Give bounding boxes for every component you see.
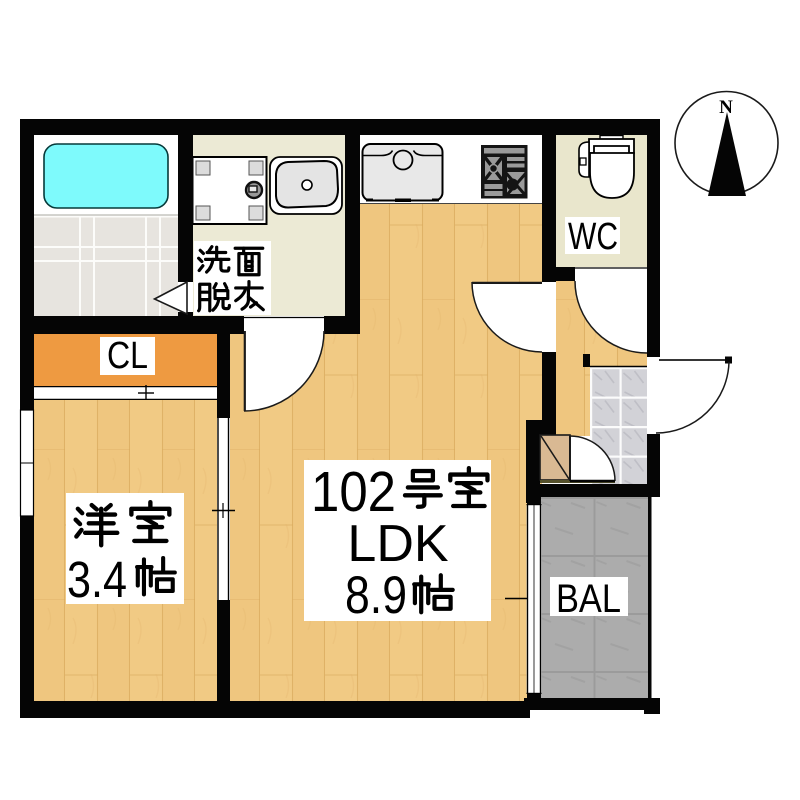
svg-text:BAL: BAL xyxy=(556,577,621,621)
svg-text:LDK: LDK xyxy=(347,515,448,573)
svg-text:3.4: 3.4 xyxy=(67,551,127,608)
svg-text:N: N xyxy=(719,97,733,118)
svg-text:WC: WC xyxy=(568,216,618,258)
svg-text:8.9: 8.9 xyxy=(345,566,407,625)
svg-text:CL: CL xyxy=(107,335,148,377)
